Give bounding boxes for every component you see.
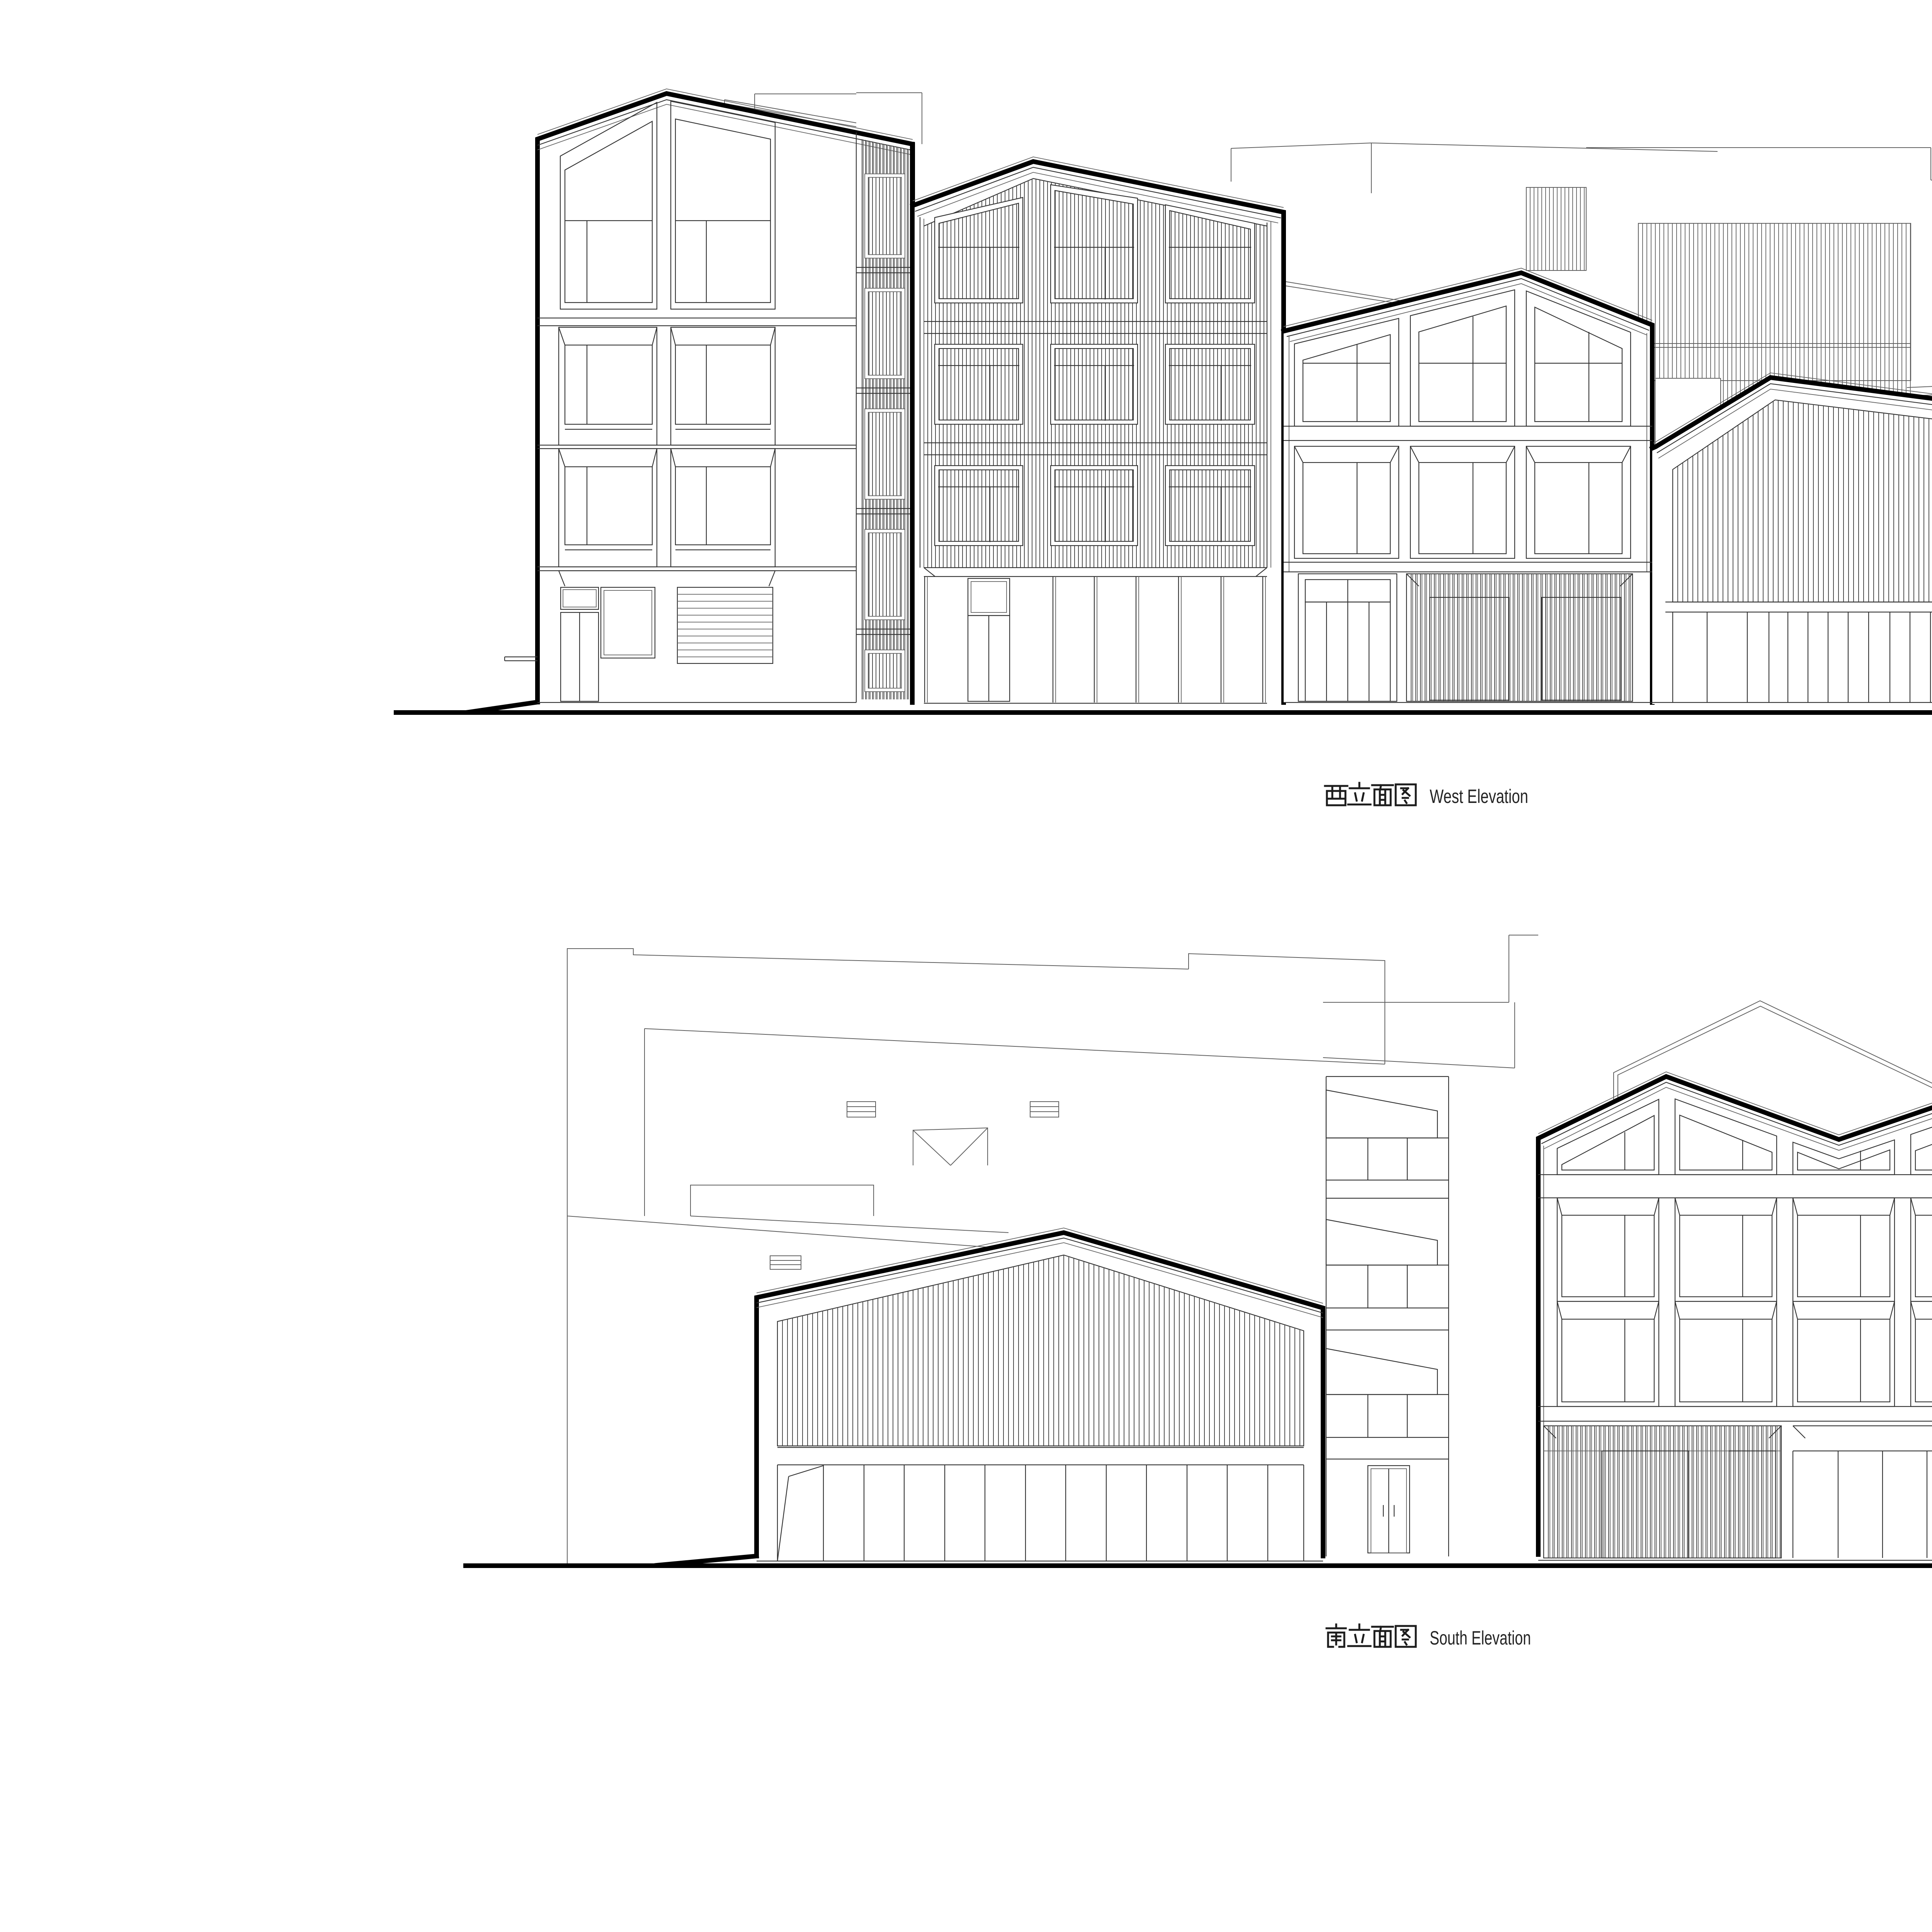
svg-text:West Elevation: West Elevation <box>1430 786 1528 807</box>
svg-text:South Elevation: South Elevation <box>1430 1627 1531 1649</box>
